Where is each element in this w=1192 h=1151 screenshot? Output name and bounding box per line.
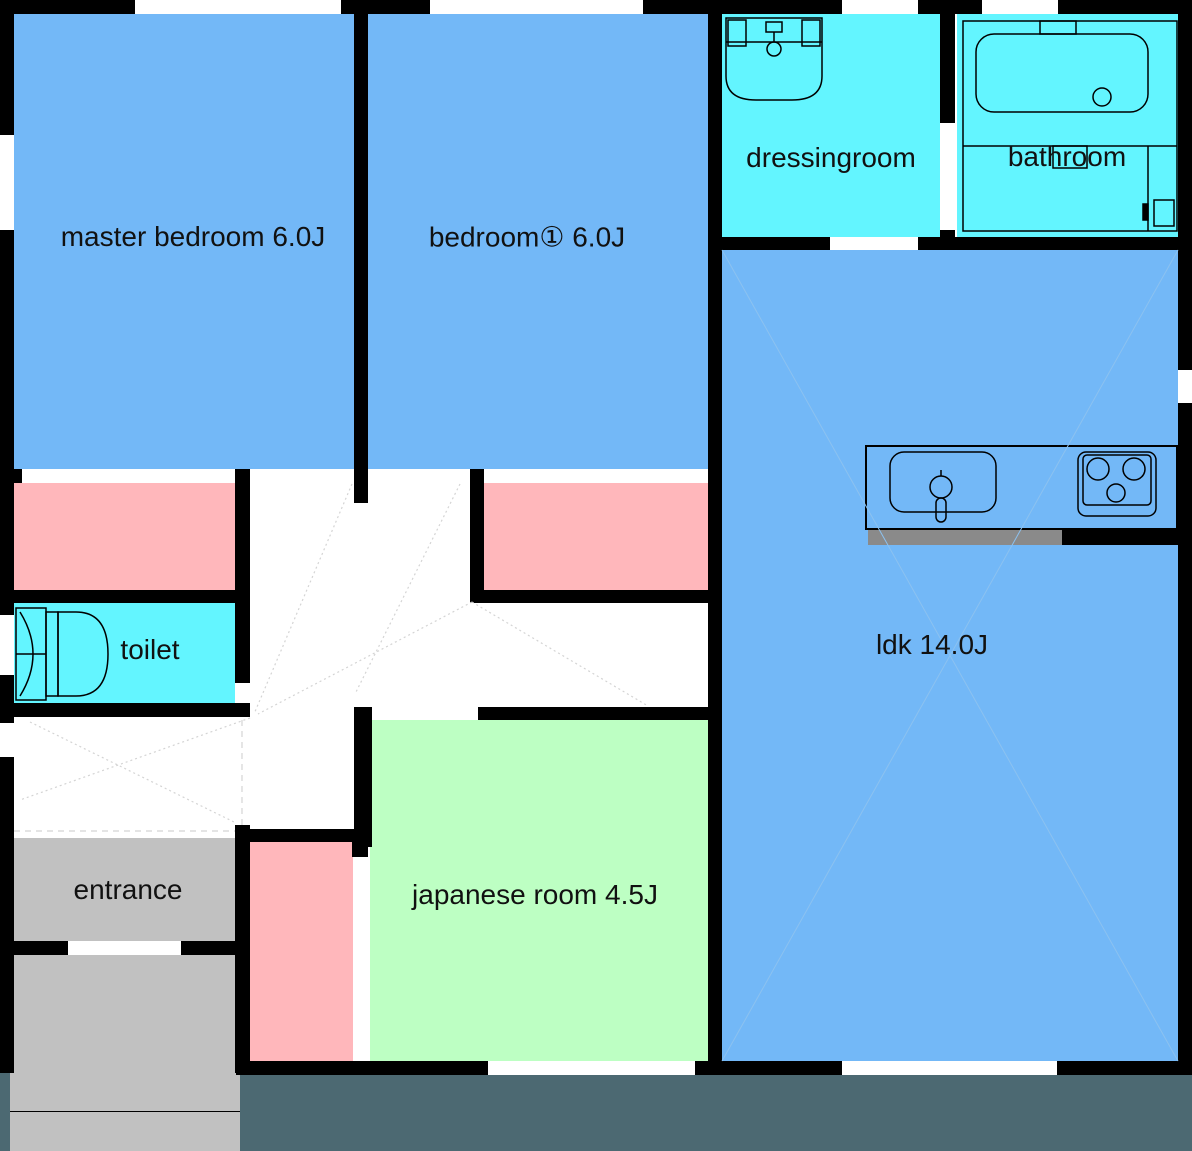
floor-plan: master bedroom 6.0J bedroom① 6.0J dressi… [0, 0, 1192, 1151]
wall-segment [14, 590, 250, 603]
entrance-porch [10, 955, 240, 1151]
wall-segment [235, 825, 250, 1073]
label-entrance: entrance [74, 874, 183, 906]
wall-segment [1178, 0, 1192, 370]
balcony-notch [0, 1073, 10, 1151]
label-toilet: toilet [120, 634, 179, 666]
wall-segment [354, 470, 368, 503]
wall-segment [352, 829, 368, 857]
wall-segment [918, 237, 1178, 250]
closet-master [14, 483, 235, 590]
room-dressingroom [722, 14, 940, 237]
wall-segment [722, 0, 842, 14]
label-master-bedroom: master bedroom 6.0J [61, 221, 326, 253]
counter-base-black [1062, 530, 1178, 545]
wall-segment [478, 707, 708, 720]
wall-segment [236, 1061, 488, 1075]
label-dressingroom: dressingroom [746, 142, 916, 174]
wall-segment [14, 703, 250, 717]
wall-segment [1178, 403, 1192, 1075]
wall-segment [14, 469, 22, 483]
wall-segment [1058, 0, 1192, 14]
wall-segment [0, 675, 14, 723]
room-bathroom [957, 14, 1178, 237]
balcony-strip [240, 1075, 1192, 1151]
wall-segment [470, 469, 484, 603]
closet-japanese [250, 842, 353, 1061]
label-bathroom: bathroom [1008, 141, 1126, 173]
wall-segment [0, 757, 14, 1073]
wall-segment [643, 0, 722, 14]
label-bedroom1: bedroom① 6.0J [429, 221, 625, 254]
closet-bedroom1 [484, 483, 708, 590]
wall-segment [708, 14, 722, 1075]
label-japanese-room: japanese room 4.5J [412, 879, 658, 911]
wall-segment [354, 707, 372, 847]
wall-segment [235, 469, 250, 683]
wall-segment [470, 590, 708, 603]
counter-base-gray [868, 530, 1062, 545]
wall-segment [0, 0, 135, 14]
wall-segment [14, 941, 68, 955]
wall-segment [940, 0, 955, 123]
label-ldk: ldk 14.0J [876, 629, 988, 661]
wall-segment [1057, 1061, 1178, 1075]
wall-segment [354, 0, 368, 470]
wall-segment [181, 941, 235, 955]
wall-segment [722, 237, 830, 250]
wall-segment [0, 230, 14, 615]
wall-segment [236, 829, 360, 842]
kitchen-counter [865, 445, 1178, 530]
porch-step-line [10, 1111, 240, 1112]
wall-segment [0, 0, 14, 135]
